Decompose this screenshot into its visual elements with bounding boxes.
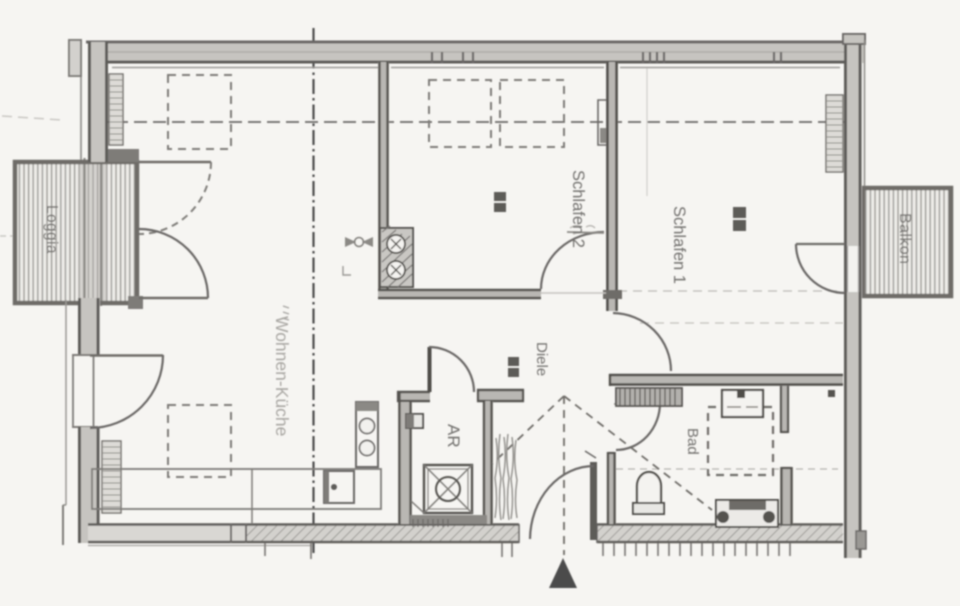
- svg-text:Loggia: Loggia: [43, 205, 60, 254]
- svg-text:AR: AR: [444, 424, 463, 448]
- svg-text:Balkon: Balkon: [896, 213, 913, 264]
- svg-text:Wohnen-Küche: Wohnen-Küche: [272, 316, 292, 436]
- svg-text:Schlafen 1: Schlafen 1: [670, 206, 688, 284]
- svg-text:Bad: Bad: [684, 428, 701, 455]
- svg-text:Diele: Diele: [533, 342, 550, 376]
- svg-text:Schlafen 2: Schlafen 2: [569, 170, 587, 248]
